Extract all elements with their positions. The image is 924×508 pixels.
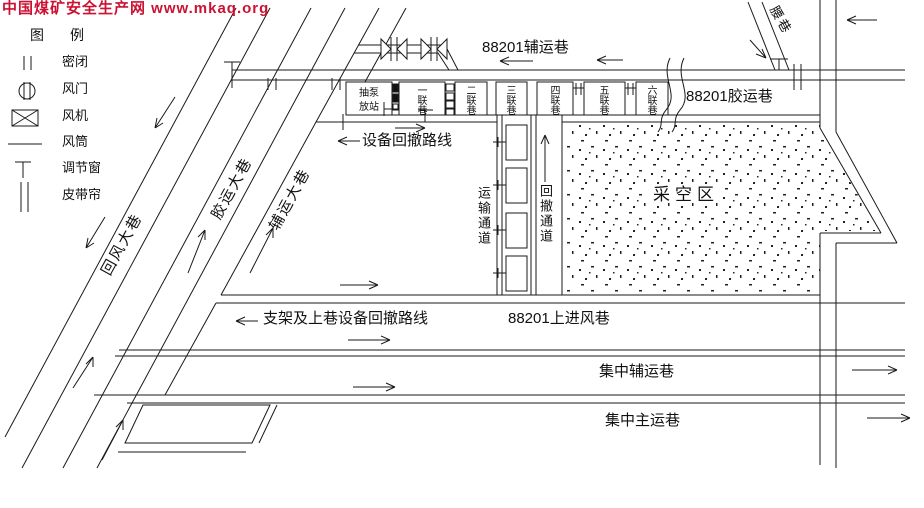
arrow-right — [867, 414, 910, 422]
room-label-lianxiang-5: 五联巷 — [597, 85, 607, 115]
pump-station-label: 抽泵 放站 — [349, 87, 389, 114]
seal-symbol — [625, 83, 636, 95]
arrow-left — [500, 57, 533, 65]
regulator-window-icon — [15, 162, 31, 178]
arrow-left — [338, 137, 360, 145]
arrow-up-right — [102, 420, 123, 460]
arrow-left — [847, 16, 877, 24]
goaf-label: 采空区 — [650, 186, 722, 203]
break-squiggle — [672, 58, 685, 132]
room-label-lianxiang-1: 一联巷 — [415, 85, 425, 115]
air-door-icon — [381, 37, 407, 61]
seal-symbol — [573, 83, 584, 95]
arrow-up-right — [73, 357, 93, 388]
legend-item-seal: 密闭 — [62, 55, 88, 68]
roadway-label-central-aux: 集中辅运巷 — [599, 364, 674, 379]
room-label-lianxiang-2: 二联巷 — [464, 85, 474, 115]
route-label-support-retreat: 支架及上巷设备回撤路线 — [263, 311, 428, 326]
room-label-lianxiang-4: 四联巷 — [548, 85, 558, 115]
chamber-box — [125, 405, 270, 443]
legend-symbols — [8, 56, 42, 212]
arrow-left — [236, 317, 258, 325]
arrow-right — [348, 336, 390, 344]
belt-curtain-icon — [21, 182, 28, 212]
arrow-up-right — [250, 228, 273, 273]
arrow-up — [541, 135, 549, 182]
legend-item-air-door: 风门 — [62, 82, 88, 95]
watermark: 中国煤矿安全生产网 www.mkaq.org — [2, 1, 269, 16]
channel-label-transport: 运输通道 — [477, 186, 490, 246]
diagram-linework — [0, 0, 924, 508]
pump-station-line1: 抽泵 — [349, 87, 389, 101]
legend-item-belt-curtain: 皮带帘 — [62, 188, 101, 201]
legend-item-regulator: 调节窗 — [62, 161, 101, 174]
room-label-lianxiang-3: 三联巷 — [504, 85, 514, 115]
fan-icon — [12, 110, 38, 126]
top-roadway — [224, 62, 905, 90]
legend-item-air-duct: 风筒 — [62, 135, 88, 148]
route-label-equipment-retreat: 设备回撤路线 — [362, 133, 452, 148]
legend-item-fan: 风机 — [62, 109, 88, 122]
arrow-right — [353, 383, 395, 391]
roadway-label-88201-aux: 88201辅运巷 — [482, 40, 569, 55]
arrow-down-right — [750, 40, 766, 58]
mine-roadway-diagram: 中国煤矿安全生产网 www.mkaq.org 图 例 密闭 风门 风机 风筒 调… — [0, 0, 924, 508]
pump-station-line2: 放站 — [349, 101, 389, 115]
arrow-left — [597, 56, 623, 64]
break-squiggle — [658, 58, 671, 132]
arrow-right — [340, 281, 378, 289]
arrow-right — [852, 366, 897, 374]
bottom-roadway-bands — [94, 295, 905, 452]
air-door-icon — [421, 37, 447, 61]
arrow-down-left — [86, 217, 105, 248]
arrow-down-left — [155, 97, 175, 128]
air-door-icon — [19, 82, 35, 100]
seal-symbol — [794, 64, 801, 90]
seal-icon — [24, 56, 31, 70]
room-label-lianxiang-6: 六联巷 — [645, 85, 655, 115]
channel-label-retreat: 回撤通道 — [539, 184, 552, 244]
roadway-label-central-main: 集中主运巷 — [605, 413, 680, 428]
legend-title: 图 例 — [30, 28, 90, 42]
roadway-label-88201-intake: 88201上进风巷 — [508, 311, 610, 326]
regulator-window-symbol — [224, 62, 240, 88]
arrow-right — [395, 124, 425, 132]
arrow-up-right — [188, 230, 205, 273]
roadway-label-88201-belt: 88201胶运巷 — [686, 89, 773, 104]
